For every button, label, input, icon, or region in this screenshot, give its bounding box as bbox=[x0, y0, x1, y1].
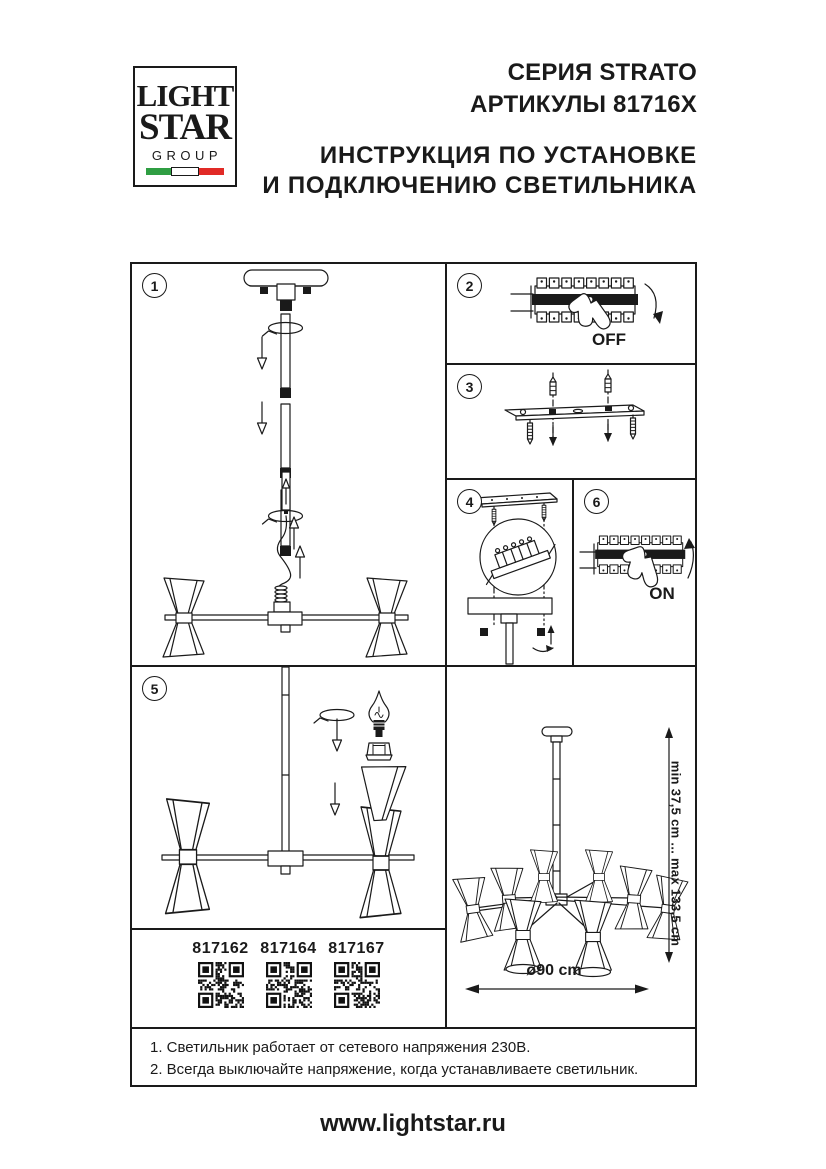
step4-panel: 4 bbox=[447, 480, 574, 667]
instruction-title-line1: ИНСТРУКЦИЯ ПО УСТАНОВКЕ bbox=[262, 141, 697, 171]
step-number-badge: 1 bbox=[142, 273, 167, 298]
qr-item: 817164 bbox=[259, 940, 319, 1013]
step1-diagram bbox=[132, 264, 445, 665]
switch-off-label: OFF bbox=[579, 330, 639, 350]
step-number-badge: 6 bbox=[584, 489, 609, 514]
document-title-block: СЕРИЯ STRATO АРТИКУЛЫ 81716X ИНСТРУКЦИЯ … bbox=[262, 57, 697, 201]
step6-panel: 6 ON bbox=[574, 480, 695, 667]
article-number: 817167 bbox=[327, 940, 387, 958]
step2-panel: 2 OFF bbox=[447, 264, 695, 365]
step-number-badge: 2 bbox=[457, 273, 482, 298]
notes-panel: 1. Светильник работает от сетевого напря… bbox=[132, 1029, 695, 1085]
website-url: www.lightstar.ru bbox=[0, 1110, 826, 1138]
step5-panel: 5 bbox=[132, 667, 447, 930]
ceiling-cup-icon bbox=[244, 270, 328, 311]
step3-panel: 3 bbox=[447, 365, 695, 480]
height-dimension-label: min 37,5 cm ... max 133,5 cm bbox=[669, 744, 684, 964]
mounting-bar-icon bbox=[505, 405, 644, 420]
qr-item: 817167 bbox=[327, 940, 387, 1013]
step-number-badge: 5 bbox=[142, 676, 167, 701]
note-line-1: 1. Светильник работает от сетевого напря… bbox=[150, 1037, 681, 1059]
qr-code bbox=[266, 962, 312, 1008]
article-number: 817164 bbox=[259, 940, 319, 958]
series-title: СЕРИЯ STRATO bbox=[262, 57, 697, 89]
italian-flag-bar bbox=[146, 168, 224, 175]
dimensions-panel: min 37,5 cm ... max 133,5 cm ø90 cm bbox=[447, 667, 695, 1029]
diameter-dimension-arrow bbox=[465, 985, 649, 994]
qr-item: 817162 bbox=[191, 940, 251, 1013]
step-number-badge: 3 bbox=[457, 374, 482, 399]
step2-diagram bbox=[447, 264, 697, 363]
chandelier-body bbox=[165, 602, 408, 632]
flag-green-segment bbox=[146, 168, 171, 175]
step3-diagram bbox=[447, 365, 697, 478]
logo-word-group: GROUP bbox=[135, 148, 235, 163]
article-number: 817162 bbox=[191, 940, 251, 958]
step5-diagram bbox=[132, 667, 445, 928]
logo-word-star: STAR bbox=[135, 111, 235, 145]
step-number-badge: 4 bbox=[457, 489, 482, 514]
qr-codes-panel: 817162 817164 817167 bbox=[132, 930, 447, 1029]
instruction-title-line2: И ПОДКЛЮЧЕНИЮ СВЕТИЛЬНИКА bbox=[262, 171, 697, 201]
articles-title: АРТИКУЛЫ 81716X bbox=[262, 89, 697, 121]
note-line-2: 2. Всегда выключайте напряжение, когда у… bbox=[150, 1059, 681, 1081]
rod-sections bbox=[280, 314, 291, 556]
qr-code bbox=[198, 962, 244, 1008]
switch-on-label: ON bbox=[636, 584, 688, 604]
step1-panel: 1 bbox=[132, 264, 447, 667]
flag-red-segment bbox=[199, 168, 224, 175]
flag-white-segment bbox=[171, 167, 198, 176]
qr-code bbox=[334, 962, 380, 1008]
lightstar-logo: LIGHT STAR GROUP bbox=[133, 66, 237, 187]
diameter-dimension-label: ø90 cm bbox=[494, 962, 614, 980]
instruction-steps-frame: 1 bbox=[130, 262, 697, 1087]
